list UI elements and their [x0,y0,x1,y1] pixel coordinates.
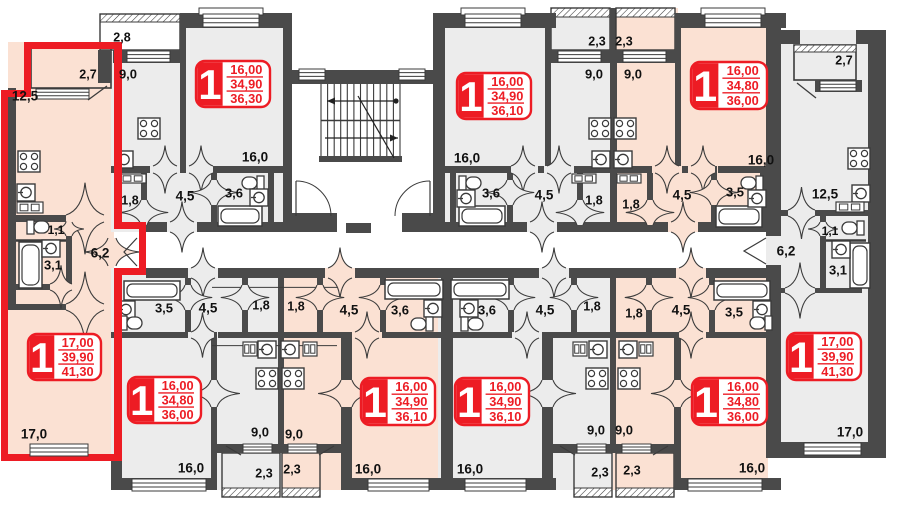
svg-text:2,3: 2,3 [591,465,608,479]
svg-text:4,5: 4,5 [176,189,195,204]
svg-text:12,5: 12,5 [12,89,39,104]
svg-text:2,3: 2,3 [623,463,640,477]
svg-text:36,10: 36,10 [395,409,427,424]
svg-text:1: 1 [457,379,481,427]
svg-text:16,0: 16,0 [739,461,765,476]
svg-text:4,5: 4,5 [340,303,359,318]
svg-text:1,8: 1,8 [585,193,602,207]
svg-text:2,3: 2,3 [615,34,632,48]
svg-text:2,3: 2,3 [588,34,605,48]
svg-text:1: 1 [694,379,718,427]
svg-text:16,0: 16,0 [178,461,204,476]
svg-text:16,0: 16,0 [454,151,480,166]
svg-text:9,0: 9,0 [251,425,269,440]
svg-text:1,8: 1,8 [121,193,138,207]
svg-text:1: 1 [789,334,813,382]
svg-text:34,90: 34,90 [491,89,523,104]
svg-text:1: 1 [363,379,387,427]
svg-text:16,0: 16,0 [242,150,268,165]
svg-text:36,10: 36,10 [489,409,521,424]
svg-text:2,7: 2,7 [835,53,852,67]
svg-text:4,5: 4,5 [535,188,554,203]
svg-text:16,00: 16,00 [727,63,759,78]
svg-text:2,3: 2,3 [283,462,300,476]
svg-text:17,0: 17,0 [837,425,863,440]
svg-text:1: 1 [459,73,482,120]
svg-text:34,80: 34,80 [162,393,194,408]
svg-text:16,00: 16,00 [162,378,194,393]
svg-text:1,8: 1,8 [625,306,642,320]
svg-text:1,8: 1,8 [287,299,304,313]
svg-text:9,0: 9,0 [587,423,605,438]
svg-text:1: 1 [30,334,53,381]
svg-text:1: 1 [693,63,717,111]
svg-text:16,0: 16,0 [355,462,381,477]
svg-text:16,0: 16,0 [457,462,483,477]
svg-text:9,0: 9,0 [119,67,137,82]
svg-text:12,5: 12,5 [812,187,839,202]
svg-text:6,2: 6,2 [91,246,110,261]
svg-text:9,0: 9,0 [585,67,603,82]
svg-text:3,5: 3,5 [725,305,743,320]
svg-text:1: 1 [198,61,221,108]
svg-text:16,00: 16,00 [727,379,759,394]
svg-text:1,1: 1,1 [48,223,65,237]
svg-text:39,90: 39,90 [62,350,94,365]
svg-text:1,8: 1,8 [583,299,600,313]
svg-text:2,3: 2,3 [255,466,272,480]
svg-text:3,5: 3,5 [155,301,173,316]
svg-text:3,5: 3,5 [726,185,744,200]
svg-text:4,5: 4,5 [672,303,691,318]
svg-text:34,90: 34,90 [395,394,427,409]
svg-text:41,30: 41,30 [821,364,853,379]
svg-text:1,8: 1,8 [622,197,639,211]
svg-text:1,8: 1,8 [252,298,269,312]
svg-text:9,0: 9,0 [624,67,642,82]
svg-text:39,90: 39,90 [821,349,853,364]
svg-text:41,30: 41,30 [62,364,94,379]
svg-text:16,00: 16,00 [230,62,262,77]
svg-text:16,0: 16,0 [748,153,774,168]
svg-text:9,0: 9,0 [615,423,633,438]
svg-text:34,90: 34,90 [489,394,521,409]
svg-text:9,0: 9,0 [285,427,303,442]
svg-text:1,1: 1,1 [822,224,839,238]
svg-text:16,00: 16,00 [489,379,521,394]
svg-text:3,6: 3,6 [482,186,500,201]
svg-text:17,00: 17,00 [62,335,94,350]
svg-text:3,6: 3,6 [478,303,496,318]
svg-text:2,7: 2,7 [79,67,96,81]
svg-text:34,80: 34,80 [727,394,759,409]
svg-text:3,6: 3,6 [225,186,243,201]
svg-text:36,00: 36,00 [162,407,194,422]
svg-text:3,1: 3,1 [44,258,62,273]
svg-text:16,00: 16,00 [491,74,523,89]
svg-text:4,5: 4,5 [536,303,555,318]
svg-text:6,2: 6,2 [777,244,796,259]
svg-text:36,00: 36,00 [727,409,759,424]
svg-text:34,90: 34,90 [230,77,262,92]
svg-text:17,0: 17,0 [21,427,47,442]
svg-text:16,00: 16,00 [395,379,427,394]
svg-text:36,10: 36,10 [491,103,523,118]
svg-text:36,00: 36,00 [727,93,759,108]
svg-text:3,1: 3,1 [829,263,847,278]
svg-text:2,8: 2,8 [113,30,130,44]
svg-text:4,5: 4,5 [673,188,692,203]
svg-text:34,80: 34,80 [727,78,759,93]
svg-text:1: 1 [130,377,153,424]
svg-text:3,6: 3,6 [391,303,409,318]
svg-text:17,00: 17,00 [821,334,853,349]
svg-text:4,5: 4,5 [199,301,218,316]
svg-text:36,30: 36,30 [230,91,262,106]
